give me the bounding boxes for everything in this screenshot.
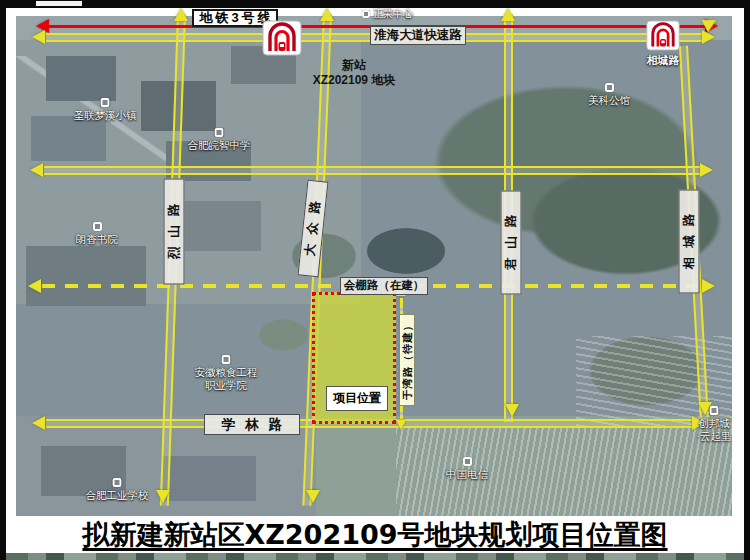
metro-station-icon-right — [646, 20, 680, 55]
parcel-name-line2: XZ202109 地块 — [312, 73, 396, 88]
poi-chuangbang: 创邦城 ·云起里 — [697, 406, 732, 442]
road-yuwan-label: 于湾路（待建） — [399, 314, 415, 406]
poi-wanzhi: 合肥皖智中学 — [188, 128, 251, 152]
map-canvas: 新站 XZ202109 地块 项目位置 地铁3号线 淮海大道快速路 会棚路（在建… — [16, 16, 732, 516]
road-dazhong-arrow-down — [306, 490, 320, 503]
road-huipeng-arrow-right — [702, 279, 715, 293]
frame-left-border — [0, 0, 6, 560]
road-junshan-arrow-down — [505, 404, 519, 417]
road-xuelin-arrow-left — [32, 416, 45, 430]
project-location-marker: 项目位置 — [326, 386, 388, 411]
road-huipeng-label: 会棚路（在建） — [340, 277, 428, 295]
road-row2-line — [44, 166, 700, 175]
title-band: 拟新建新站区XZ202109号地块规划项目位置图 — [6, 516, 744, 553]
road-row2-arrow-right — [700, 163, 713, 177]
poi-label: 合肥皖智中学 — [188, 139, 251, 152]
parcel-name: 新站 XZ202109 地块 — [312, 58, 396, 88]
road-lieshan-arrow-up — [174, 8, 188, 21]
building-icon — [710, 406, 719, 415]
window-top-notch — [36, 1, 82, 6]
poi-dianxin: 中国电信 — [446, 457, 488, 481]
building-icon — [93, 222, 102, 231]
road-huaihai-arrow-left — [32, 30, 45, 44]
bottom-image-strip — [6, 553, 744, 560]
poi-label: 美科公馆 — [588, 94, 630, 107]
poi-shenglian: 圣联梦溪小镇 — [74, 98, 137, 122]
road-xiangcheng-label: 相城路 — [679, 190, 700, 294]
poi-label: 朗香书院 — [76, 233, 118, 246]
parcel-name-line1: 新站 — [312, 58, 396, 73]
road-junshan-arrow-up — [501, 8, 515, 21]
map-title: 拟新建新站区XZ202109号地块规划项目位置图 — [82, 517, 667, 553]
road-huaihai-arrow-right — [702, 30, 715, 44]
poi-meike: 美科公馆 — [588, 83, 630, 107]
poi-langxiang: 朗香书院 — [76, 222, 118, 246]
building-icon — [605, 83, 614, 92]
poi-label: 合肥工业学校 — [86, 489, 149, 502]
road-yuwan-arrow-down — [396, 420, 406, 430]
frame-right-border — [744, 0, 750, 560]
road-dazhong-arrow-up — [320, 8, 334, 21]
road-huaihai-label: 淮海大道快速路 — [370, 26, 466, 45]
building-icon — [101, 98, 110, 107]
building-icon — [113, 478, 122, 487]
metro-station-icon-left — [262, 20, 302, 60]
road-lieshan-arrow-down — [156, 490, 170, 503]
building-icon — [362, 10, 370, 18]
planning-map-page: { "title": { "text": "拟新建新站区XZ202109号地块规… — [0, 0, 750, 560]
building-icon — [222, 355, 231, 364]
road-lieshan-label: 烈山路 — [164, 179, 185, 285]
road-row2-arrow-left — [30, 163, 43, 177]
poi-zhengrong: 正荣中心 — [362, 8, 413, 20]
poi-label-line2: 职业学院 — [205, 379, 247, 392]
poi-label-line2: ·云起里 — [697, 430, 732, 443]
poi-label: 中国电信 — [446, 468, 488, 481]
poi-label-line1: 创邦城 — [698, 417, 730, 430]
poi-label-line1: 安徽粮食工程 — [195, 366, 258, 379]
road-huipeng-arrow-left — [28, 279, 41, 293]
poi-liangshi: 安徽粮食工程 职业学院 — [195, 355, 258, 391]
building-icon — [215, 128, 224, 137]
metro-station-name-right: 相城路 — [647, 53, 680, 68]
window-top-bar — [0, 0, 750, 8]
road-junshan-label: 君山路 — [501, 191, 522, 295]
poi-label: 正荣中心 — [373, 8, 413, 20]
poi-label: 圣联梦溪小镇 — [74, 109, 137, 122]
road-xuelin-label: 学林路 — [204, 414, 300, 435]
poi-gongye: 合肥工业学校 — [86, 478, 149, 502]
building-icon — [463, 457, 472, 466]
